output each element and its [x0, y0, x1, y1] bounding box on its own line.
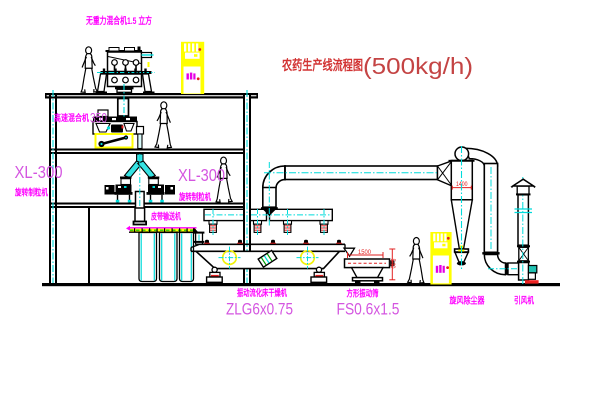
svg-text:农药生产线流程图: 农药生产线流程图	[281, 57, 363, 73]
svg-text:振动流化床干燥机: 振动流化床干燥机	[237, 287, 287, 298]
svg-text:旋风除尘器: 旋风除尘器	[449, 295, 486, 306]
svg-text:XL-300: XL-300	[15, 162, 63, 182]
svg-text:高速混合机: 高速混合机	[54, 112, 89, 123]
svg-text:FS0.6x1.5: FS0.6x1.5	[337, 301, 400, 319]
svg-text:皮带输送机: 皮带输送机	[150, 211, 181, 222]
svg-text:方形振动筛: 方形振动筛	[347, 288, 379, 299]
svg-text:XL-300: XL-300	[178, 165, 225, 185]
svg-text:350: 350	[90, 111, 107, 126]
svg-text:无重力混合机1.5 立方: 无重力混合机1.5 立方	[85, 15, 152, 27]
svg-text:540: 540	[389, 259, 395, 270]
svg-text:1500: 1500	[358, 249, 371, 256]
svg-text:引风机: 引风机	[514, 295, 534, 306]
svg-text:ZLG6x0.75: ZLG6x0.75	[226, 301, 293, 319]
svg-text:(500kg/h): (500kg/h)	[363, 53, 473, 79]
svg-text:旋转制粒机: 旋转制粒机	[14, 187, 48, 198]
svg-text:旋转制粒机: 旋转制粒机	[178, 191, 211, 202]
